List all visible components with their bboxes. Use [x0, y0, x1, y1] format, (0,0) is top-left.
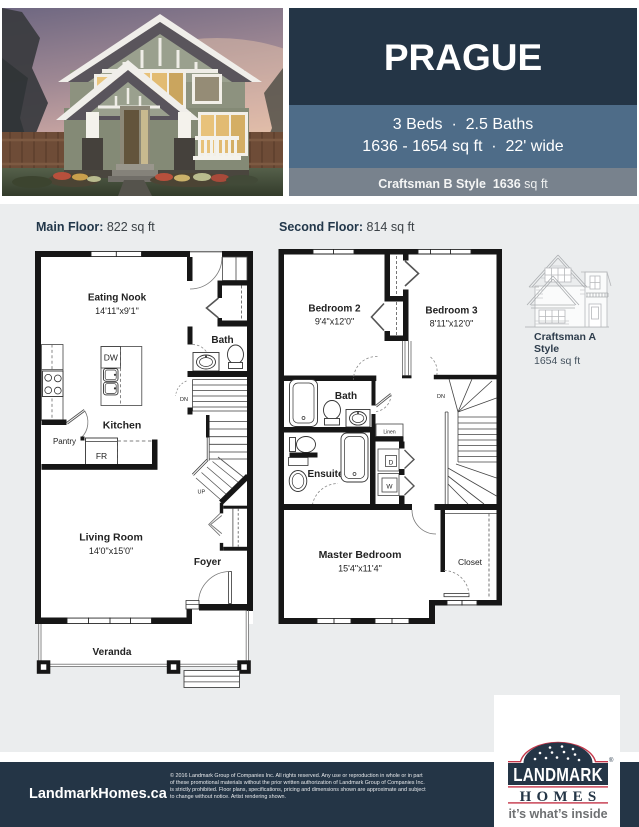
- svg-text:DN: DN: [437, 394, 445, 400]
- svg-text:DW: DW: [104, 353, 118, 363]
- svg-text:8'11"x12'0": 8'11"x12'0": [430, 319, 474, 329]
- svg-text:FR: FR: [96, 451, 107, 461]
- svg-text:it’s what’s inside: it’s what’s inside: [508, 807, 607, 821]
- svg-text:Veranda: Veranda: [93, 647, 132, 658]
- svg-text:Living Room: Living Room: [79, 532, 143, 544]
- svg-text:®: ®: [609, 757, 614, 764]
- svg-text:Bedroom 3: Bedroom 3: [425, 306, 478, 317]
- svg-text:LANDMARK: LANDMARK: [513, 765, 603, 786]
- svg-text:Master Bedroom: Master Bedroom: [319, 549, 402, 561]
- svg-text:D: D: [389, 460, 394, 467]
- svg-text:DN: DN: [180, 397, 188, 403]
- svg-text:Kitchen: Kitchen: [103, 420, 142, 432]
- svg-text:Pantry: Pantry: [53, 437, 76, 446]
- svg-text:UP: UP: [198, 490, 206, 496]
- svg-text:Linen: Linen: [383, 430, 395, 436]
- svg-text:W: W: [386, 484, 393, 491]
- svg-text:Bedroom 2: Bedroom 2: [308, 304, 361, 315]
- svg-text:Ensuite: Ensuite: [307, 469, 344, 480]
- svg-text:Closet: Closet: [458, 557, 483, 567]
- svg-text:9'4"x12'0": 9'4"x12'0": [315, 317, 354, 327]
- svg-text:Eating Nook: Eating Nook: [88, 293, 147, 304]
- svg-text:14'11"x9'1": 14'11"x9'1": [95, 306, 139, 316]
- svg-text:Bath: Bath: [211, 335, 233, 346]
- svg-text:14'0"x15'0": 14'0"x15'0": [89, 546, 133, 556]
- svg-text:Bath: Bath: [335, 391, 357, 402]
- svg-text:Foyer: Foyer: [194, 557, 221, 568]
- svg-text:15'4"x11'4": 15'4"x11'4": [338, 564, 382, 574]
